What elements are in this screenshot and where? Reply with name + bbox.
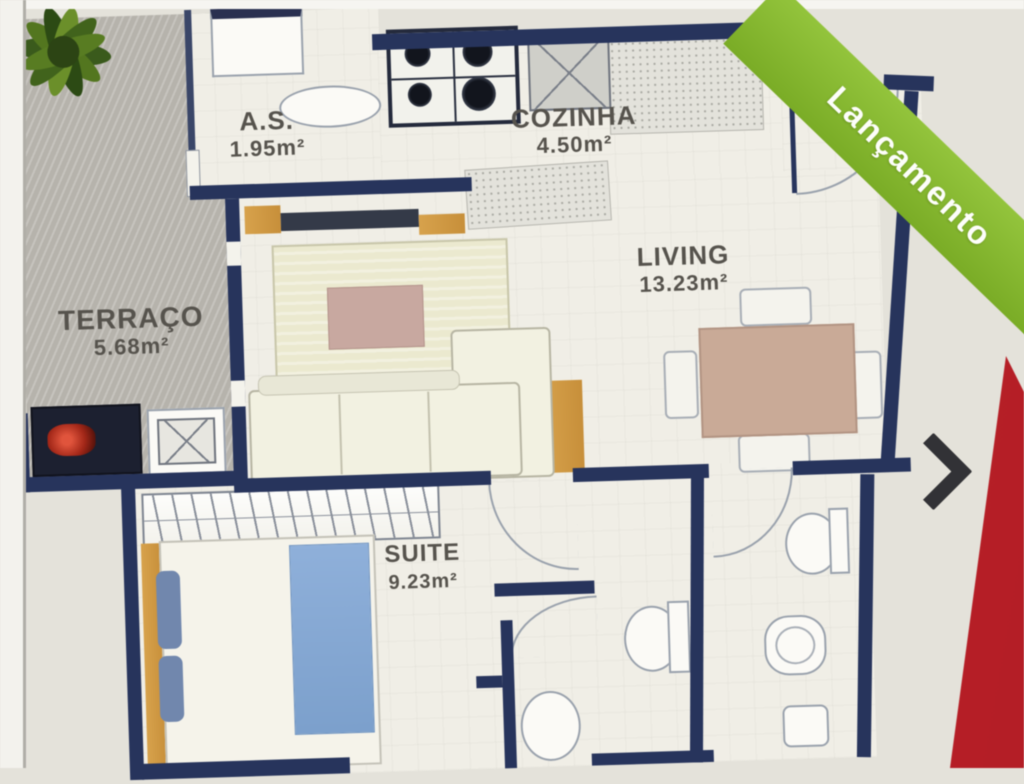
tv-rack-wood-left bbox=[244, 205, 281, 234]
sofa bbox=[248, 382, 523, 484]
terrace-sink bbox=[147, 407, 227, 475]
room-label-as: A.S. 1.95m² bbox=[186, 103, 348, 164]
wall bbox=[592, 750, 714, 766]
room-area: 5.68m² bbox=[46, 331, 217, 362]
sink-basin bbox=[775, 626, 816, 665]
bidet bbox=[782, 704, 829, 747]
laundry-tank bbox=[210, 6, 304, 77]
photo-left-border bbox=[0, 0, 26, 768]
wall bbox=[690, 474, 704, 762]
room-area: 9.23m² bbox=[358, 567, 489, 597]
wall bbox=[476, 675, 502, 688]
room-name: SUITE bbox=[357, 537, 488, 571]
wall bbox=[883, 74, 934, 91]
room-name: LIVING bbox=[608, 238, 759, 273]
sofa-cushion-line bbox=[339, 395, 343, 474]
room-name: TERRAÇO bbox=[45, 301, 216, 336]
dining-chair-left bbox=[663, 350, 699, 419]
grill-coals bbox=[47, 423, 96, 456]
room-area: 1.95m² bbox=[187, 133, 348, 164]
listing-photo: TERRAÇO 5.68m² A.S. 1.95m² COZINHA 4.50m… bbox=[0, 0, 1024, 768]
coffee-table bbox=[327, 285, 425, 350]
toilet-tank bbox=[667, 601, 691, 674]
photo-top-border bbox=[0, 0, 1024, 9]
room-area: 13.23m² bbox=[609, 268, 760, 299]
bed-pillow bbox=[158, 655, 184, 722]
kitchen-sink bbox=[527, 35, 611, 112]
room-label-cozinha: COZINHA 4.50m² bbox=[483, 99, 665, 161]
terrace-sink-basin bbox=[157, 417, 216, 465]
wardrobe-shelf-line bbox=[144, 511, 438, 521]
kitchen-island-counter bbox=[464, 160, 612, 229]
room-label-suite: SUITE 9.23m² bbox=[357, 537, 489, 597]
bathroom-sink bbox=[763, 614, 827, 676]
barbecue-grill bbox=[30, 404, 142, 477]
room-label-living: LIVING 13.23m² bbox=[608, 238, 760, 299]
stove-burner bbox=[407, 82, 432, 107]
window bbox=[226, 241, 241, 265]
tv-rack-wood-right bbox=[419, 213, 466, 234]
sofa-cushion-line bbox=[427, 392, 431, 471]
room-label-terraco: TERRAÇO 5.68m² bbox=[45, 301, 217, 362]
toilet-tank bbox=[828, 508, 850, 575]
dining-table bbox=[698, 323, 857, 438]
window bbox=[231, 380, 246, 406]
bed-pillow bbox=[156, 571, 182, 650]
